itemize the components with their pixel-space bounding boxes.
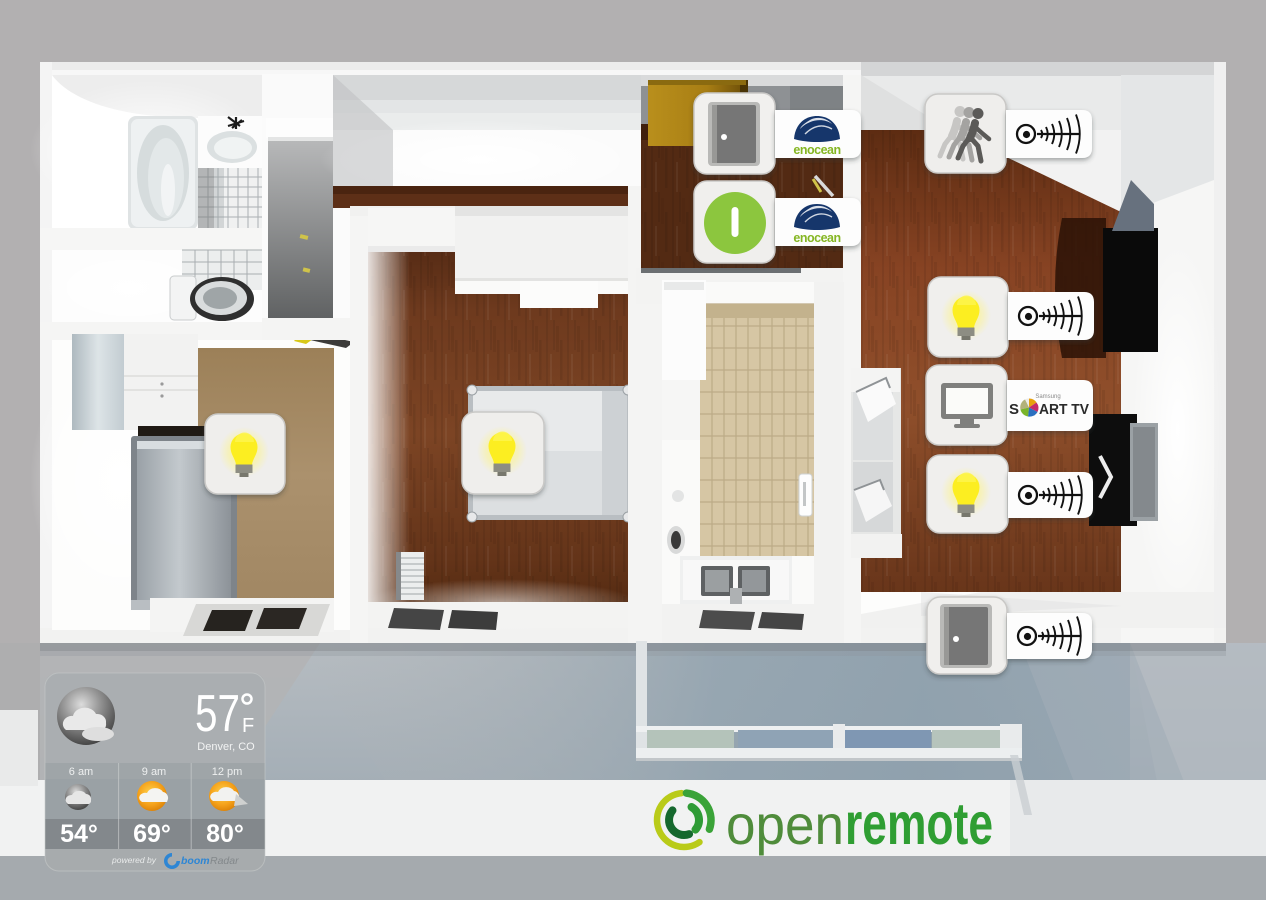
svg-text:80°: 80° <box>206 820 244 848</box>
svg-text:F: F <box>242 715 254 737</box>
svg-text:Radar: Radar <box>210 855 239 867</box>
svg-text:powered by: powered by <box>111 855 157 865</box>
svg-text:12 pm: 12 pm <box>212 766 243 778</box>
svg-text:57: 57 <box>195 685 240 743</box>
svg-text:54°: 54° <box>60 820 98 848</box>
svg-text:Samsung: Samsung <box>1035 394 1060 400</box>
svg-text:S: S <box>1009 401 1019 418</box>
svg-text:remote: remote <box>845 791 993 857</box>
svg-text:9 am: 9 am <box>142 766 166 778</box>
svg-text:69°: 69° <box>133 820 171 848</box>
svg-text:Denver, CO: Denver, CO <box>197 741 255 753</box>
svg-text:boom: boom <box>181 855 210 867</box>
svg-text:open: open <box>726 793 844 856</box>
svg-text:ART TV: ART TV <box>1039 401 1089 418</box>
svg-text:6 am: 6 am <box>69 766 93 778</box>
